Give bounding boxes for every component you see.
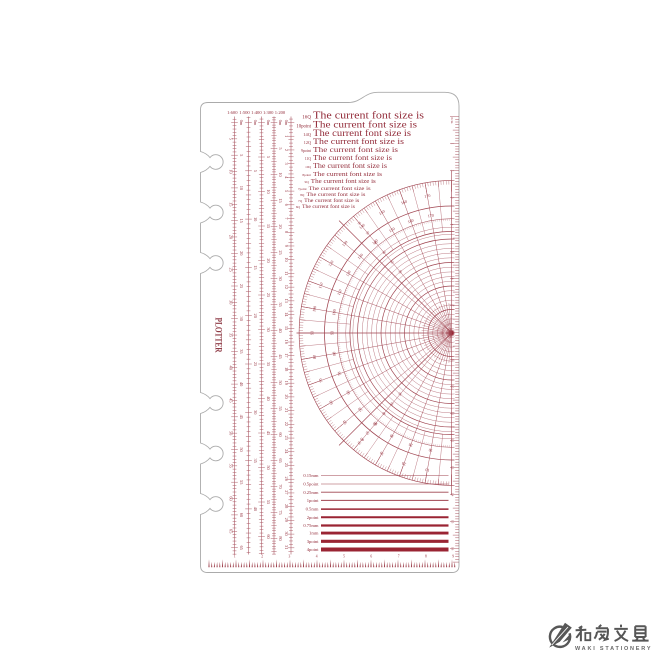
svg-text:22: 22 xyxy=(284,422,289,426)
svg-text:31: 31 xyxy=(284,545,289,549)
svg-text:8: 8 xyxy=(425,555,427,559)
svg-text:35: 35 xyxy=(266,362,271,366)
svg-text:2point: 2point xyxy=(307,515,319,520)
svg-text:3point: 3point xyxy=(307,539,319,544)
svg-text:11: 11 xyxy=(451,412,455,416)
svg-text:10: 10 xyxy=(253,217,258,221)
svg-text:The current font size is: The current font size is xyxy=(313,163,387,170)
svg-text:The current font size is: The current font size is xyxy=(302,205,355,210)
svg-text:9: 9 xyxy=(452,555,454,559)
svg-text:2: 2 xyxy=(261,555,263,559)
svg-text:5: 5 xyxy=(253,170,258,172)
svg-text:28: 28 xyxy=(284,504,289,508)
svg-text:10: 10 xyxy=(428,448,433,454)
svg-text:2: 2 xyxy=(284,149,289,151)
svg-text:40: 40 xyxy=(278,328,283,332)
svg-text:6Q: 6Q xyxy=(296,205,301,209)
svg-text:30: 30 xyxy=(284,531,289,535)
svg-text:The current font size is: The current font size is xyxy=(313,171,383,178)
svg-text:0.15mm: 0.15mm xyxy=(303,473,319,478)
svg-text:100: 100 xyxy=(311,305,317,312)
svg-text:The current font size is: The current font size is xyxy=(313,153,392,162)
svg-text:35: 35 xyxy=(278,302,283,306)
svg-text:5: 5 xyxy=(343,555,345,559)
svg-text:The current font size is: The current font size is xyxy=(304,197,359,204)
svg-text:The current font size is: The current font size is xyxy=(306,191,365,198)
svg-text:29: 29 xyxy=(284,518,289,522)
svg-text:20: 20 xyxy=(278,224,283,228)
svg-text:75: 75 xyxy=(278,510,283,514)
svg-text:170: 170 xyxy=(427,213,434,219)
svg-text:20: 20 xyxy=(228,235,233,239)
svg-text:1:400: 1:400 xyxy=(251,110,262,115)
svg-text:0m: 0m xyxy=(278,120,283,126)
svg-text:170: 170 xyxy=(424,193,431,199)
svg-text:25: 25 xyxy=(278,250,283,254)
svg-text:3: 3 xyxy=(289,555,291,559)
svg-text:50: 50 xyxy=(239,447,244,451)
svg-text:45: 45 xyxy=(278,354,283,358)
svg-text:9: 9 xyxy=(284,245,289,247)
svg-text:13: 13 xyxy=(284,298,289,302)
svg-text:PLOTTER: PLOTTER xyxy=(214,318,224,353)
svg-text:11: 11 xyxy=(284,271,289,275)
svg-text:5: 5 xyxy=(278,147,283,149)
svg-text:12Q: 12Q xyxy=(304,140,311,145)
svg-text:8point: 8point xyxy=(302,173,311,177)
svg-text:14: 14 xyxy=(451,493,455,497)
svg-text:19: 19 xyxy=(284,381,289,385)
svg-text:10: 10 xyxy=(451,385,455,389)
svg-text:1:500: 1:500 xyxy=(239,110,250,115)
svg-text:15: 15 xyxy=(278,198,283,202)
svg-text:The current font size is: The current font size is xyxy=(311,178,377,185)
svg-text:15: 15 xyxy=(239,218,244,222)
svg-text:20: 20 xyxy=(239,251,244,255)
svg-text:90: 90 xyxy=(310,331,315,335)
svg-text:15: 15 xyxy=(284,326,289,330)
svg-text:0m: 0m xyxy=(253,120,258,126)
svg-text:60: 60 xyxy=(239,513,244,517)
svg-text:35: 35 xyxy=(253,458,258,462)
svg-text:40: 40 xyxy=(253,507,258,511)
svg-text:1: 1 xyxy=(234,555,236,559)
svg-text:8Q: 8Q xyxy=(300,193,305,197)
svg-text:0.5point: 0.5point xyxy=(303,482,319,487)
svg-text:1point: 1point xyxy=(307,498,319,503)
svg-text:50: 50 xyxy=(228,431,233,435)
svg-text:4: 4 xyxy=(316,555,318,559)
svg-text:The current font size is: The current font size is xyxy=(309,185,372,192)
svg-text:0cm: 0cm xyxy=(450,118,454,124)
svg-text:8: 8 xyxy=(284,231,289,233)
svg-text:40: 40 xyxy=(239,382,244,386)
svg-text:50: 50 xyxy=(278,380,283,384)
svg-text:45: 45 xyxy=(266,431,271,435)
svg-text:9point: 9point xyxy=(301,149,312,153)
svg-text:5: 5 xyxy=(239,154,244,156)
svg-text:45: 45 xyxy=(239,415,244,419)
svg-text:55: 55 xyxy=(228,464,233,468)
svg-text:13: 13 xyxy=(451,466,455,470)
svg-text:1:600: 1:600 xyxy=(227,110,238,115)
svg-text:0m: 0m xyxy=(266,120,271,126)
svg-text:16: 16 xyxy=(451,547,455,551)
svg-text:5: 5 xyxy=(284,190,289,192)
svg-text:65: 65 xyxy=(239,545,244,549)
svg-text:30: 30 xyxy=(266,327,271,331)
svg-text:10: 10 xyxy=(239,186,244,190)
svg-text:60: 60 xyxy=(278,432,283,436)
svg-text:45: 45 xyxy=(228,398,233,402)
svg-text:1mm: 1mm xyxy=(309,531,319,536)
svg-text:12: 12 xyxy=(451,439,455,443)
svg-text:15: 15 xyxy=(253,265,258,269)
svg-text:90: 90 xyxy=(330,331,335,335)
svg-text:5: 5 xyxy=(228,138,233,140)
svg-text:40: 40 xyxy=(228,366,233,370)
svg-text:10: 10 xyxy=(228,169,233,173)
svg-text:10: 10 xyxy=(266,189,271,193)
svg-text:12: 12 xyxy=(284,285,289,289)
svg-text:10Q: 10Q xyxy=(305,165,311,169)
svg-text:30: 30 xyxy=(239,317,244,321)
svg-text:25: 25 xyxy=(228,267,233,271)
svg-text:1: 1 xyxy=(284,135,289,137)
svg-text:23: 23 xyxy=(284,435,289,439)
svg-text:9Q: 9Q xyxy=(305,180,310,184)
svg-text:0.75mm: 0.75mm xyxy=(303,523,319,528)
svg-text:25: 25 xyxy=(266,293,271,297)
svg-text:35: 35 xyxy=(228,333,233,337)
svg-text:55: 55 xyxy=(278,406,283,410)
svg-text:25: 25 xyxy=(284,463,289,467)
svg-text:7point: 7point xyxy=(298,187,307,191)
svg-text:4point: 4point xyxy=(307,547,319,552)
svg-text:25: 25 xyxy=(239,284,244,288)
svg-text:30: 30 xyxy=(253,410,258,414)
svg-text:80: 80 xyxy=(312,355,318,360)
svg-text:3: 3 xyxy=(284,163,289,165)
svg-text:11Q: 11Q xyxy=(305,157,312,161)
svg-text:40: 40 xyxy=(266,396,271,400)
svg-text:55: 55 xyxy=(266,500,271,504)
svg-text:15: 15 xyxy=(228,202,233,206)
svg-text:10point: 10point xyxy=(296,125,311,130)
svg-text:18: 18 xyxy=(284,367,289,371)
svg-text:20: 20 xyxy=(266,258,271,262)
svg-text:1:200: 1:200 xyxy=(275,110,286,115)
svg-text:0m: 0m xyxy=(239,120,244,126)
svg-text:14Q: 14Q xyxy=(303,132,312,137)
svg-text:30: 30 xyxy=(228,300,233,304)
svg-text:80: 80 xyxy=(278,536,283,540)
svg-text:50: 50 xyxy=(266,465,271,469)
svg-text:5: 5 xyxy=(266,156,271,158)
svg-text:0.5mm: 0.5mm xyxy=(306,507,319,512)
svg-text:7Q: 7Q xyxy=(298,199,303,203)
svg-text:25: 25 xyxy=(253,362,258,366)
svg-text:20: 20 xyxy=(253,314,258,318)
svg-text:6: 6 xyxy=(370,555,372,559)
svg-text:15: 15 xyxy=(451,520,455,524)
svg-text:60: 60 xyxy=(266,534,271,538)
svg-text:21: 21 xyxy=(284,408,289,412)
svg-text:30: 30 xyxy=(278,276,283,280)
svg-text:16Q: 16Q xyxy=(302,115,311,121)
svg-text:0.25mm: 0.25mm xyxy=(303,490,319,495)
svg-text:35: 35 xyxy=(239,349,244,353)
svg-text:7: 7 xyxy=(398,555,400,559)
svg-text:100: 100 xyxy=(331,309,337,316)
svg-text:65: 65 xyxy=(228,529,233,533)
svg-text:80: 80 xyxy=(331,351,337,356)
svg-text:10: 10 xyxy=(425,467,430,473)
svg-text:10: 10 xyxy=(284,257,289,261)
svg-text:15: 15 xyxy=(266,224,271,228)
svg-text:0m: 0m xyxy=(284,120,289,126)
svg-text:65: 65 xyxy=(278,458,283,462)
svg-text:55: 55 xyxy=(239,480,244,484)
svg-text:10: 10 xyxy=(278,172,283,176)
svg-text:70: 70 xyxy=(278,484,283,488)
svg-text:60: 60 xyxy=(228,496,233,500)
svg-text:1:300: 1:300 xyxy=(263,110,274,115)
svg-text:20: 20 xyxy=(284,394,289,398)
